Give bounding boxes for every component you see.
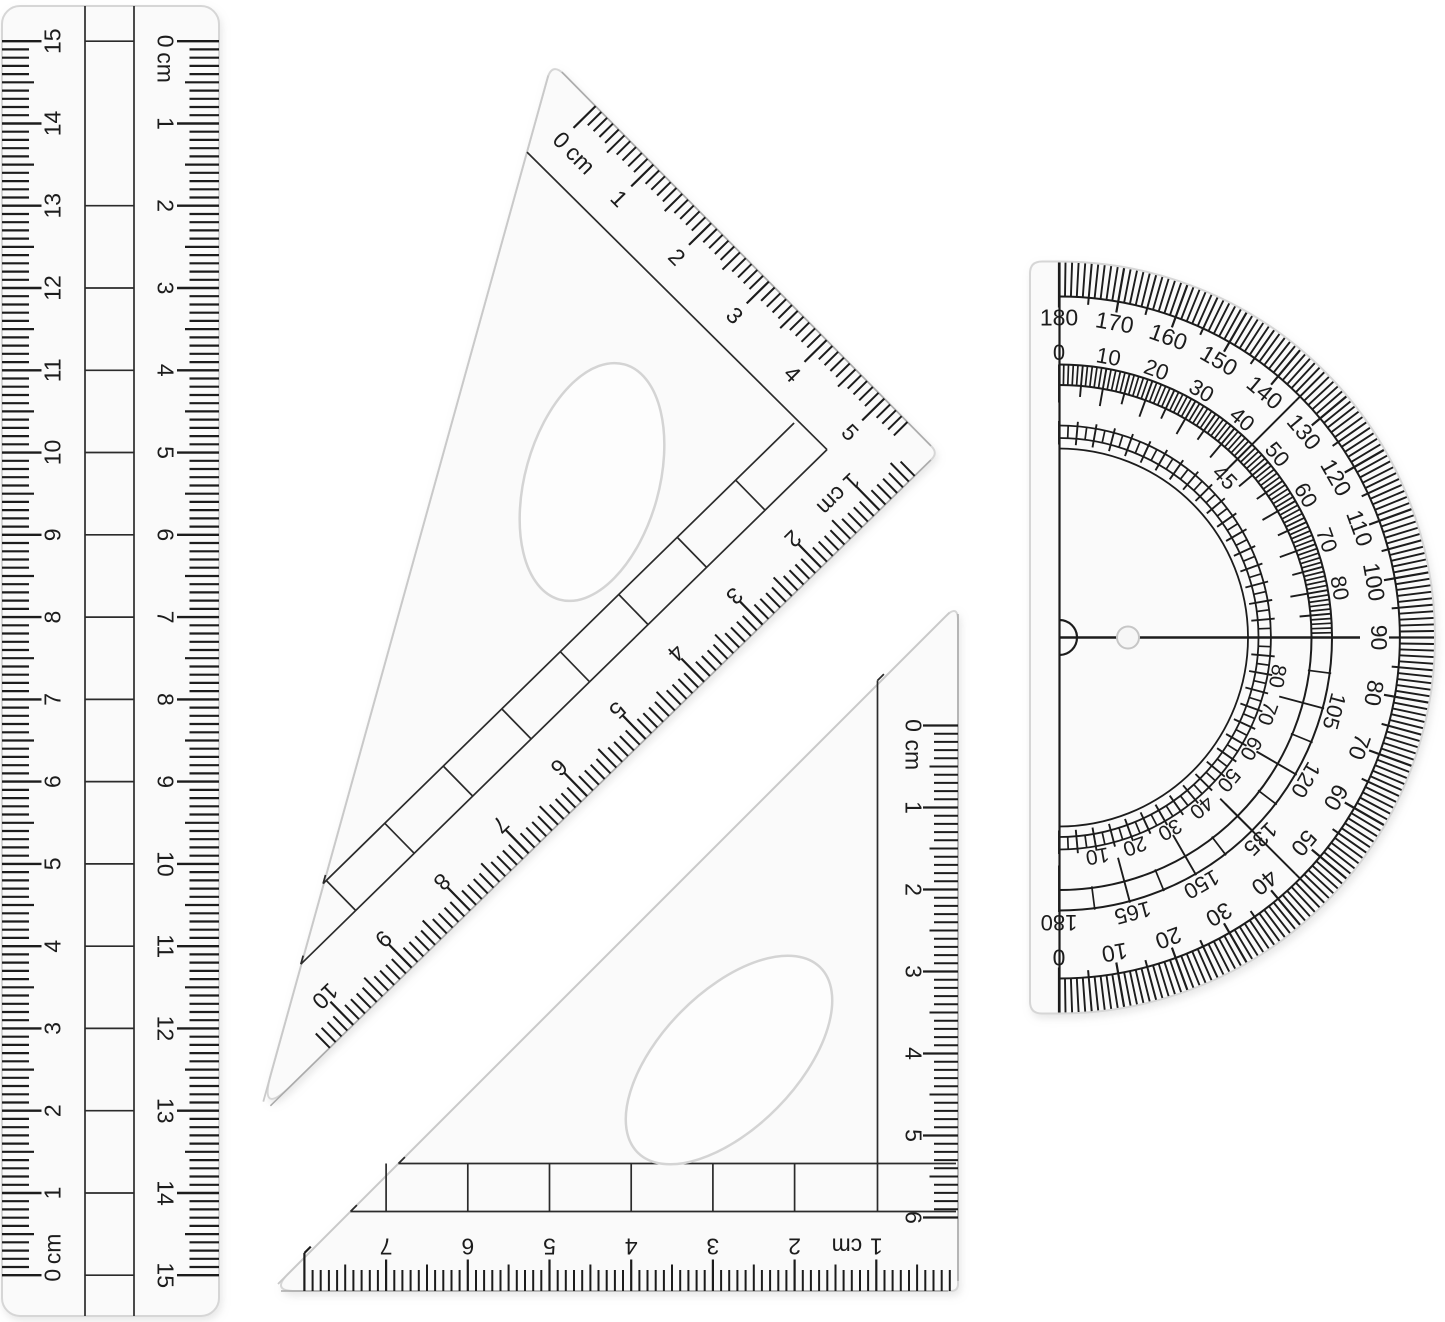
svg-text:1: 1: [153, 117, 179, 130]
svg-text:15: 15: [153, 1262, 179, 1288]
svg-text:14: 14: [40, 111, 66, 137]
svg-text:7: 7: [153, 611, 179, 624]
svg-text:15: 15: [40, 28, 66, 54]
svg-text:5: 5: [40, 858, 66, 871]
svg-text:80: 80: [1359, 678, 1389, 708]
svg-text:10: 10: [153, 851, 179, 877]
svg-text:0: 0: [1053, 340, 1065, 365]
svg-text:11: 11: [153, 934, 179, 958]
svg-text:13: 13: [40, 193, 66, 219]
svg-text:cm: cm: [40, 1234, 66, 1265]
svg-text:12: 12: [40, 275, 66, 301]
svg-text:0: 0: [153, 35, 179, 48]
svg-text:11: 11: [40, 358, 66, 382]
svg-text:10: 10: [40, 440, 66, 466]
svg-text:cm: cm: [901, 740, 927, 771]
svg-text:4: 4: [625, 1234, 638, 1260]
svg-text:4: 4: [40, 940, 66, 953]
svg-text:cm: cm: [832, 1234, 863, 1260]
svg-text:6: 6: [153, 528, 179, 541]
svg-text:6: 6: [901, 1211, 927, 1224]
svg-text:180: 180: [1041, 910, 1078, 935]
svg-text:3: 3: [40, 1022, 66, 1035]
svg-text:9: 9: [40, 528, 66, 541]
svg-text:80: 80: [1325, 574, 1354, 602]
svg-text:1: 1: [40, 1187, 66, 1200]
svg-text:3: 3: [707, 1234, 720, 1260]
svg-text:0: 0: [901, 719, 927, 732]
svg-text:4: 4: [153, 364, 179, 377]
svg-text:180: 180: [1040, 305, 1078, 331]
svg-text:90: 90: [1366, 625, 1392, 651]
svg-text:0: 0: [1053, 945, 1066, 971]
svg-text:10: 10: [1094, 342, 1122, 371]
svg-text:7: 7: [380, 1234, 393, 1260]
svg-text:0: 0: [40, 1269, 66, 1282]
svg-text:6: 6: [40, 775, 66, 788]
svg-text:14: 14: [153, 1180, 179, 1206]
svg-text:5: 5: [901, 1129, 927, 1142]
svg-text:2: 2: [40, 1104, 66, 1117]
svg-text:12: 12: [153, 1016, 179, 1042]
svg-text:2: 2: [901, 883, 927, 896]
svg-text:2: 2: [153, 199, 179, 212]
svg-text:2: 2: [788, 1234, 801, 1260]
svg-text:3: 3: [153, 282, 179, 295]
svg-text:9: 9: [153, 775, 179, 788]
svg-text:10: 10: [1084, 842, 1111, 869]
svg-text:7: 7: [40, 693, 66, 706]
svg-text:1: 1: [870, 1234, 883, 1260]
svg-text:5: 5: [543, 1234, 556, 1260]
svg-text:13: 13: [153, 1098, 179, 1124]
svg-text:4: 4: [901, 1047, 927, 1060]
svg-text:6: 6: [461, 1234, 474, 1260]
svg-text:3: 3: [901, 965, 927, 978]
svg-text:cm: cm: [153, 52, 179, 83]
svg-text:8: 8: [153, 693, 179, 706]
svg-text:80: 80: [1264, 662, 1291, 689]
svg-text:8: 8: [40, 611, 66, 624]
svg-text:1: 1: [901, 801, 927, 814]
svg-text:5: 5: [153, 446, 179, 459]
svg-text:10: 10: [1100, 938, 1130, 968]
